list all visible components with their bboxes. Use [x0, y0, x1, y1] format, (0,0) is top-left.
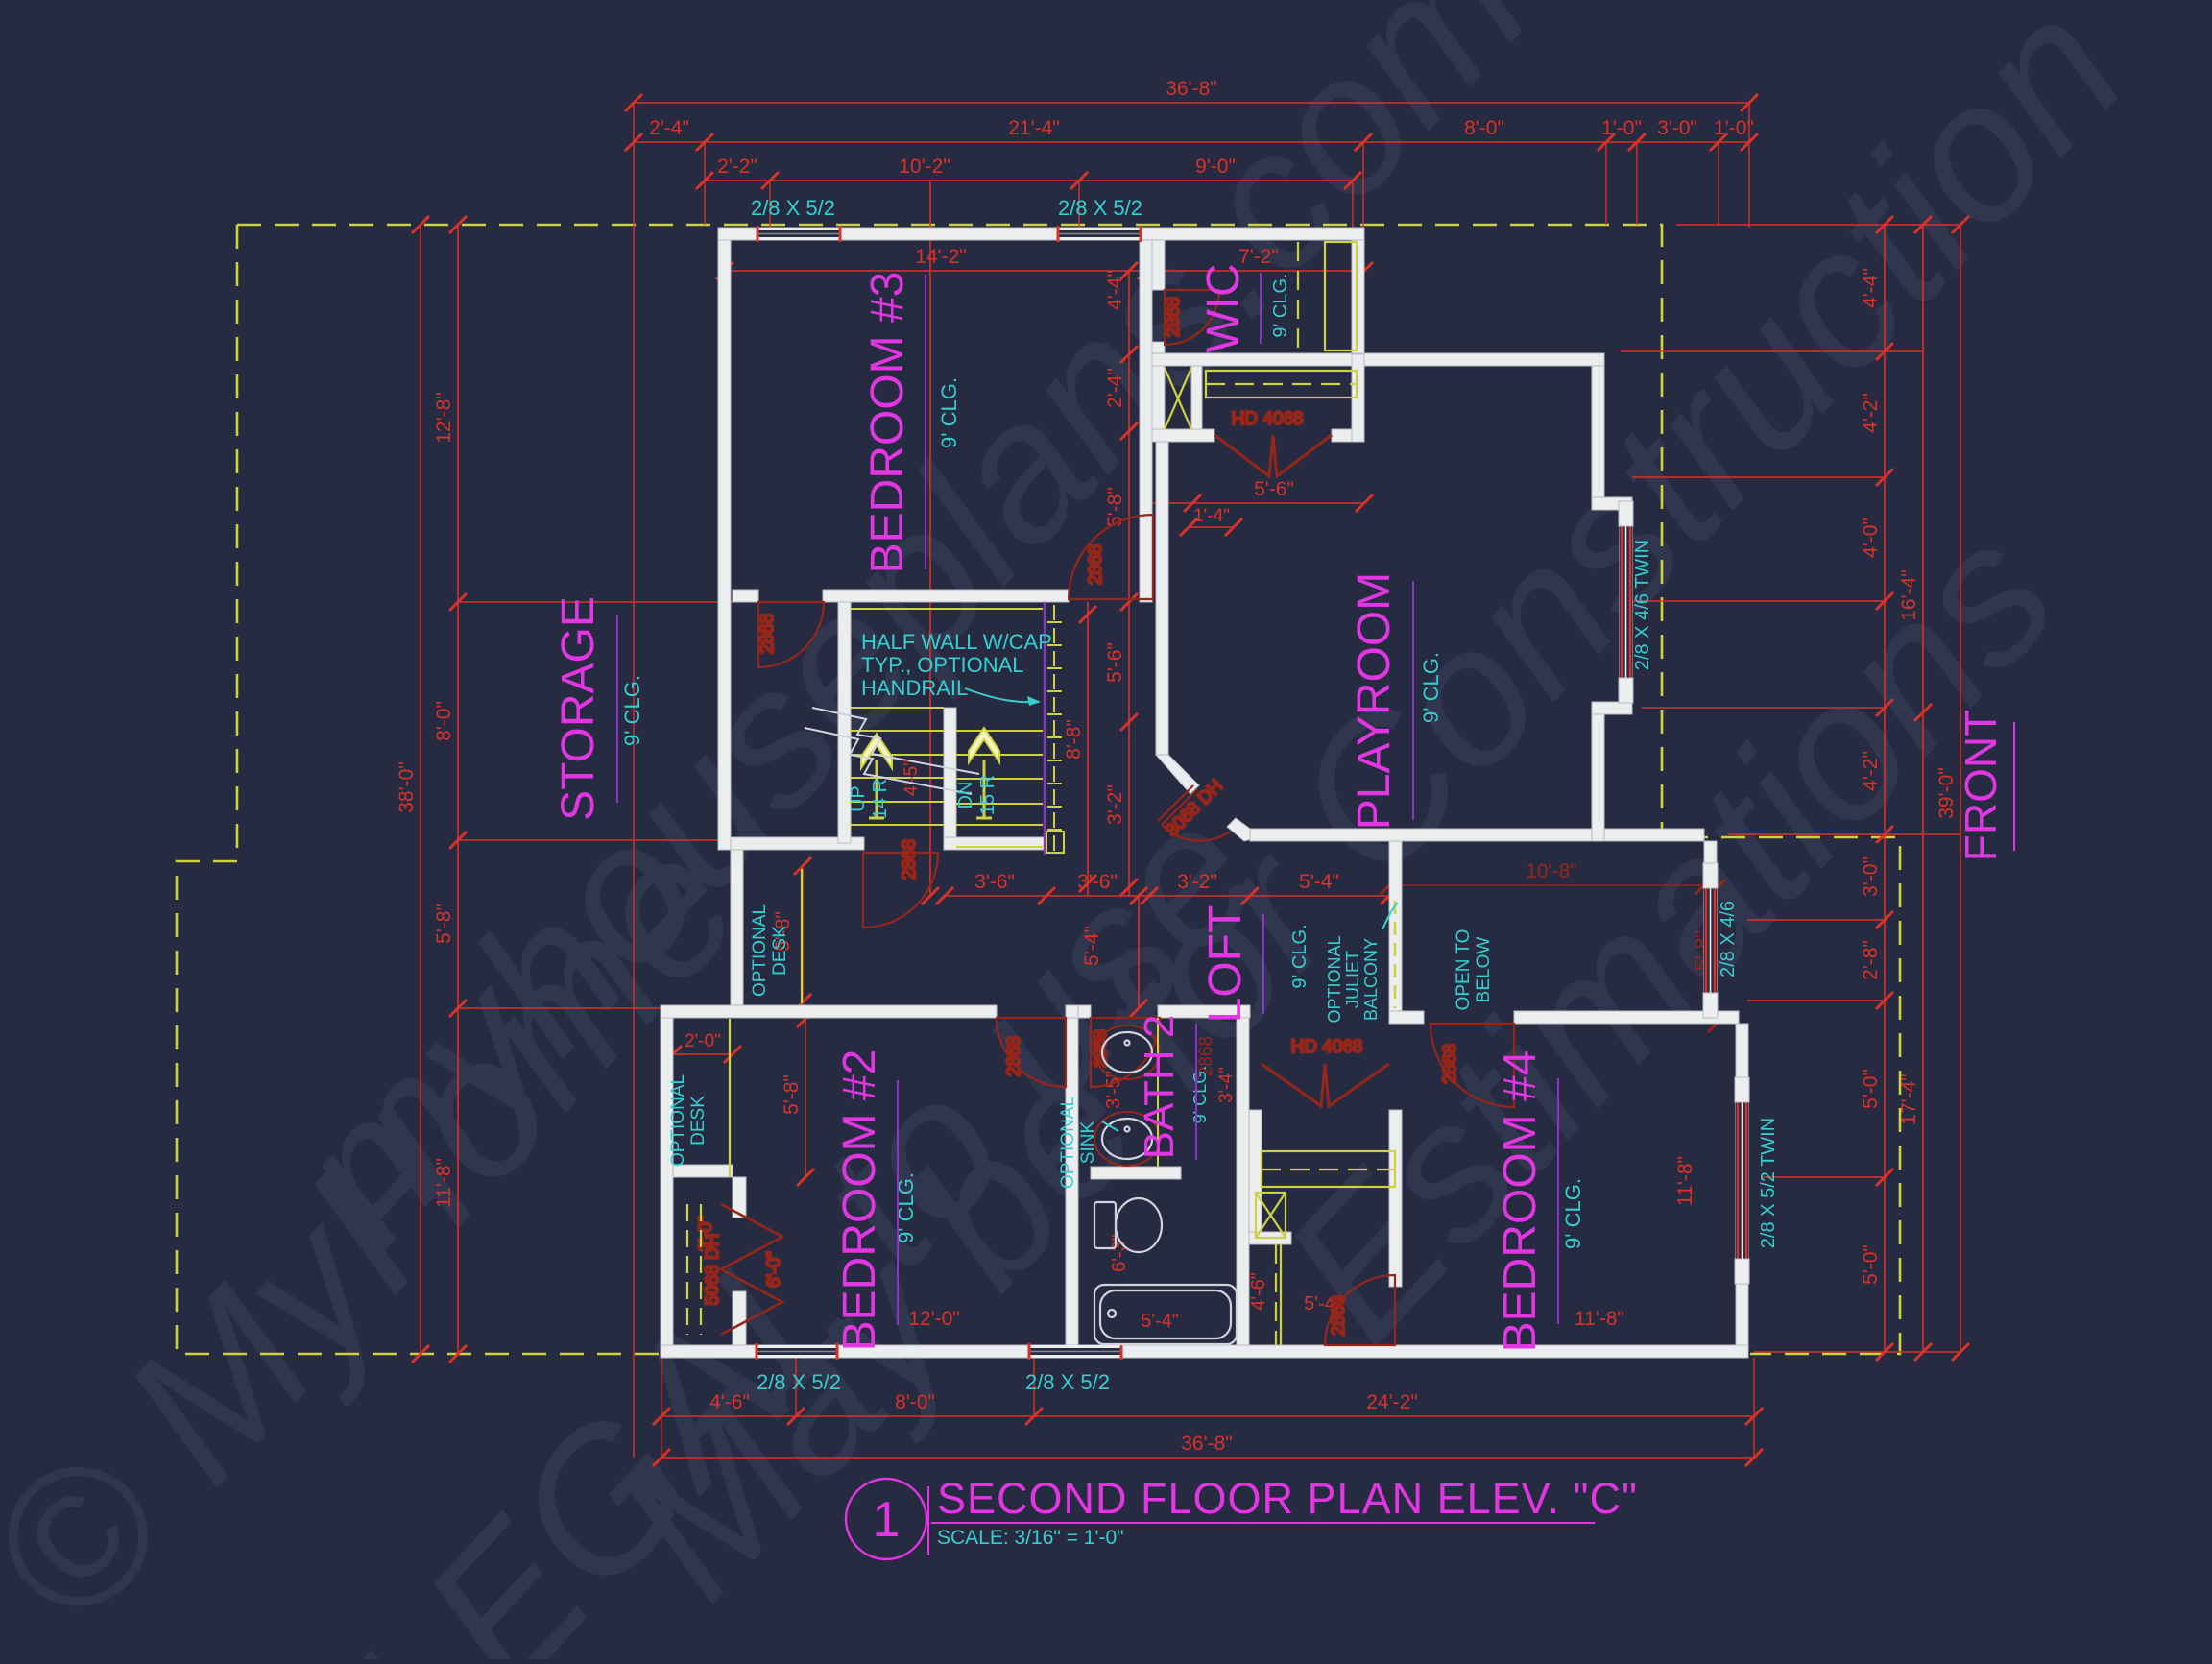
svg-text:5'-4": 5'-4"	[1081, 926, 1103, 966]
svg-text:2'-0": 2'-0"	[696, 1216, 716, 1252]
svg-text:2'-8": 2'-8"	[1860, 940, 1882, 980]
svg-text:JULIET: JULIET	[1343, 951, 1362, 1008]
svg-text:2868: 2868	[1164, 297, 1184, 337]
svg-text:17'-4": 17'-4"	[1898, 1073, 1920, 1125]
svg-text:5'-8": 5'-8"	[781, 1074, 803, 1115]
svg-text:BEDROOM #4: BEDROOM #4	[1495, 1050, 1546, 1353]
svg-text:9'-0": 9'-0"	[1195, 156, 1236, 178]
svg-text:2868: 2868	[1440, 1044, 1460, 1084]
svg-text:OPTIONAL: OPTIONAL	[668, 1074, 688, 1167]
svg-text:3'-2": 3'-2"	[1177, 871, 1217, 893]
svg-text:1'-4": 1'-4"	[1193, 506, 1230, 526]
svg-text:HD 4068: HD 4068	[1232, 409, 1304, 429]
svg-text:6'-0": 6'-0"	[764, 1251, 784, 1288]
svg-text:DESK: DESK	[770, 926, 790, 976]
svg-text:WIC: WIC	[1198, 263, 1249, 352]
svg-text:3'-6": 3'-6"	[974, 871, 1015, 893]
svg-text:1'-0": 1'-0"	[1714, 117, 1754, 139]
svg-text:14'-2": 14'-2"	[915, 246, 967, 268]
svg-text:2/8 X 4/6: 2/8 X 4/6	[1718, 901, 1739, 977]
svg-text:9' CLG.: 9' CLG.	[1561, 1178, 1585, 1249]
svg-text:24'-2": 24'-2"	[1366, 1391, 1418, 1413]
svg-text:HALF WALL W/CAP: HALF WALL W/CAP	[861, 630, 1052, 654]
svg-text:39'-0": 39'-0"	[1935, 767, 1958, 819]
svg-text:3'-4": 3'-4"	[1216, 1067, 1237, 1103]
svg-text:10'-8": 10'-8"	[1526, 860, 1577, 882]
svg-text:BATH 2: BATH 2	[1136, 1015, 1183, 1160]
svg-text:STORAGE: STORAGE	[553, 596, 604, 821]
svg-text:12'-0": 12'-0"	[908, 1308, 960, 1330]
svg-text:11'-8": 11'-8"	[1674, 1156, 1696, 1206]
svg-text:11'-8": 11'-8"	[1575, 1308, 1624, 1330]
svg-text:5'-0": 5'-0"	[1860, 1069, 1882, 1109]
svg-text:11'-8": 11'-8"	[433, 1158, 455, 1208]
svg-text:5'-6": 5'-6"	[1254, 478, 1294, 500]
svg-text:BELOW: BELOW	[1474, 937, 1494, 1003]
svg-text:14 R: 14 R	[870, 779, 891, 819]
svg-text:OPTIONAL: OPTIONAL	[750, 904, 770, 997]
svg-text:5'-4": 5'-4"	[1299, 871, 1339, 893]
svg-text:DESK: DESK	[688, 1096, 709, 1146]
svg-text:SECOND FLOOR PLAN ELEV. "C": SECOND FLOOR PLAN ELEV. "C"	[937, 1474, 1638, 1523]
svg-text:2'-4": 2'-4"	[649, 117, 689, 139]
svg-text:1'-0": 1'-0"	[1601, 117, 1642, 139]
svg-text:OPTIONAL: OPTIONAL	[1325, 935, 1344, 1023]
svg-text:5'-4": 5'-4"	[1141, 1311, 1179, 1332]
svg-text:SCALE: 3/16" = 1'-0": SCALE: 3/16" = 1'-0"	[937, 1527, 1124, 1549]
svg-text:8'-0": 8'-0"	[433, 701, 455, 741]
svg-text:9' CLG.: 9' CLG.	[620, 675, 644, 746]
svg-text:4'-4": 4'-4"	[1860, 268, 1882, 308]
svg-text:3'-0": 3'-0"	[1657, 117, 1697, 139]
svg-text:UP: UP	[848, 785, 869, 812]
svg-text:9' CLG.: 9' CLG.	[937, 377, 961, 448]
svg-text:9' CLG.: 9' CLG.	[1270, 273, 1291, 337]
svg-text:9' CLG.: 9' CLG.	[1289, 924, 1310, 988]
svg-text:BEDROOM #3: BEDROOM #3	[862, 272, 913, 574]
svg-text:4'-6": 4'-6"	[709, 1391, 750, 1413]
svg-text:HANDRAIL: HANDRAIL	[861, 676, 968, 700]
svg-text:1: 1	[873, 1492, 901, 1548]
svg-text:2'-0": 2'-0"	[685, 1031, 721, 1051]
svg-text:36'-8": 36'-8"	[1181, 1433, 1233, 1455]
svg-text:4'-2": 4'-2"	[1860, 751, 1882, 791]
svg-text:10'-2": 10'-2"	[899, 156, 950, 178]
svg-text:2/8 X 5/2: 2/8 X 5/2	[1058, 196, 1142, 220]
svg-text:2/8 X 5/2: 2/8 X 5/2	[751, 196, 835, 220]
svg-text:12'-8": 12'-8"	[433, 392, 455, 444]
svg-text:2/8 X 5/2 TWIN: 2/8 X 5/2 TWIN	[1758, 1118, 1779, 1248]
svg-text:2868: 2868	[900, 839, 920, 880]
svg-text:2/8 X 5/2: 2/8 X 5/2	[757, 1370, 841, 1394]
svg-text:5'-6": 5'-6"	[1104, 642, 1126, 683]
svg-text:2868: 2868	[1086, 544, 1106, 585]
svg-text:2'-4": 2'-4"	[1104, 368, 1126, 408]
svg-text:4'-6": 4'-6"	[1248, 1272, 1269, 1311]
svg-text:DN: DN	[955, 782, 976, 809]
svg-text:2868: 2868	[1091, 1029, 1110, 1068]
svg-text:2'-2": 2'-2"	[717, 156, 757, 178]
svg-text:16'-4": 16'-4"	[1898, 569, 1920, 621]
svg-text:8'-8": 8'-8"	[1063, 719, 1085, 760]
svg-text:4'-5": 4'-5"	[902, 760, 922, 796]
svg-text:8'-0": 8'-0"	[1464, 117, 1504, 139]
svg-text:BEDROOM #2: BEDROOM #2	[834, 1049, 885, 1352]
svg-text:FRONT: FRONT	[1956, 710, 2006, 861]
svg-text:2/8 X 4/6 TWIN: 2/8 X 4/6 TWIN	[1632, 540, 1653, 670]
svg-text:15 R: 15 R	[977, 775, 998, 815]
svg-text:38'-0": 38'-0"	[396, 761, 418, 813]
svg-text:3'-2": 3'-2"	[1104, 784, 1126, 825]
svg-text:2868: 2868	[1329, 1295, 1349, 1336]
svg-text:9' CLG.: 9' CLG.	[1190, 1066, 1210, 1123]
svg-text:21'-4": 21'-4"	[1008, 117, 1060, 139]
svg-text:8'-0": 8'-0"	[895, 1391, 935, 1413]
svg-text:4'-0": 4'-0"	[1860, 518, 1882, 558]
svg-text:LOFT: LOFT	[1200, 905, 1251, 1024]
svg-text:3'-0": 3'-0"	[1860, 856, 1882, 897]
svg-text:4'-2": 4'-2"	[1860, 393, 1882, 433]
svg-text:4'-4": 4'-4"	[1104, 270, 1126, 310]
svg-text:PLAYROOM: PLAYROOM	[1349, 572, 1400, 831]
svg-text:2868: 2868	[1004, 1036, 1024, 1076]
svg-text:2/8 X 5/2: 2/8 X 5/2	[1025, 1370, 1110, 1394]
svg-text:5'-8": 5'-8"	[433, 904, 455, 944]
svg-text:36'-8": 36'-8"	[1166, 78, 1217, 100]
svg-text:3'-6": 3'-6"	[1077, 871, 1118, 893]
svg-text:OPTIONAL: OPTIONAL	[1058, 1097, 1078, 1189]
svg-text:5'-0": 5'-0"	[1860, 1244, 1882, 1285]
svg-text:SINK: SINK	[1078, 1121, 1098, 1165]
svg-text:TYP., OPTIONAL: TYP., OPTIONAL	[861, 653, 1024, 677]
svg-text:2868: 2868	[757, 614, 778, 654]
svg-text:9' CLG.: 9' CLG.	[1419, 652, 1443, 723]
svg-text:BALCONY: BALCONY	[1361, 938, 1381, 1021]
svg-text:OPEN TO: OPEN TO	[1454, 929, 1474, 1011]
svg-text:HD 4068: HD 4068	[1291, 1037, 1363, 1057]
